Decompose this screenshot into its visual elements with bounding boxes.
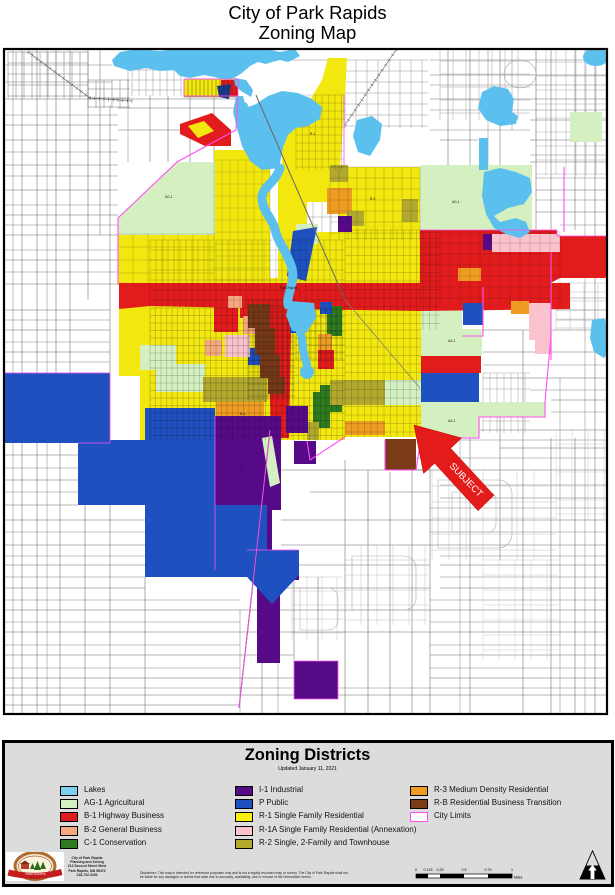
svg-text:Park Rapids: Park Rapids xyxy=(280,286,298,290)
svg-text:Miles: Miles xyxy=(514,876,523,880)
svg-text:0.25: 0.25 xyxy=(437,868,444,872)
svg-text:R-1: R-1 xyxy=(310,132,315,136)
svg-text:0.125: 0.125 xyxy=(424,868,433,872)
svg-text:0.75: 0.75 xyxy=(485,868,492,872)
svg-text:AG-1: AG-1 xyxy=(165,195,173,199)
svg-text:1: 1 xyxy=(511,868,513,872)
svg-text:AG-1: AG-1 xyxy=(448,419,456,423)
svg-text:R-1: R-1 xyxy=(240,412,245,416)
svg-text:EST. 1882: EST. 1882 xyxy=(29,878,41,881)
svg-text:AG-1: AG-1 xyxy=(452,200,460,204)
svg-text:I-1: I-1 xyxy=(240,467,244,471)
svg-text:0: 0 xyxy=(415,868,417,872)
svg-text:0.5: 0.5 xyxy=(462,868,467,872)
svg-text:PARK RAPIDS: PARK RAPIDS xyxy=(26,872,46,876)
svg-text:I-1: I-1 xyxy=(230,437,234,441)
svg-text:R-1: R-1 xyxy=(370,197,375,201)
svg-text:AG-1: AG-1 xyxy=(448,339,456,343)
